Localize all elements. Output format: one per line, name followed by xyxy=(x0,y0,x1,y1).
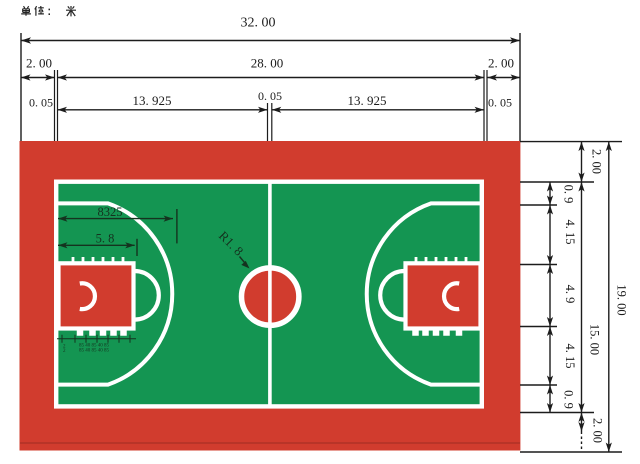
svg-text:4. 9: 4. 9 xyxy=(563,285,577,304)
svg-text:2. 00: 2. 00 xyxy=(488,56,514,71)
svg-text:0. 05: 0. 05 xyxy=(29,96,53,110)
svg-text:0. 05: 0. 05 xyxy=(258,89,282,103)
svg-text:2. 00: 2. 00 xyxy=(591,418,605,443)
svg-text:0. 9: 0. 9 xyxy=(562,185,576,204)
svg-text:85 40 85 40 85: 85 40 85 40 85 xyxy=(79,349,110,354)
svg-text:19. 00: 19. 00 xyxy=(615,284,629,315)
svg-text:4. 15: 4. 15 xyxy=(563,344,577,369)
svg-text:5. 8: 5. 8 xyxy=(96,232,115,246)
svg-text:0. 9: 0. 9 xyxy=(562,390,576,409)
svg-text:2. 00: 2. 00 xyxy=(26,56,52,71)
svg-text:2. 00: 2. 00 xyxy=(590,149,604,174)
svg-text:8325: 8325 xyxy=(98,205,123,219)
svg-text:32. 00: 32. 00 xyxy=(241,16,276,31)
svg-text:13. 925: 13. 925 xyxy=(348,93,387,108)
svg-text:0. 05: 0. 05 xyxy=(488,96,512,110)
svg-text:4. 15: 4. 15 xyxy=(563,220,577,245)
svg-text:28. 00: 28. 00 xyxy=(251,56,284,71)
svg-text:13. 925: 13. 925 xyxy=(133,93,172,108)
svg-text:15. 00: 15. 00 xyxy=(588,324,602,355)
